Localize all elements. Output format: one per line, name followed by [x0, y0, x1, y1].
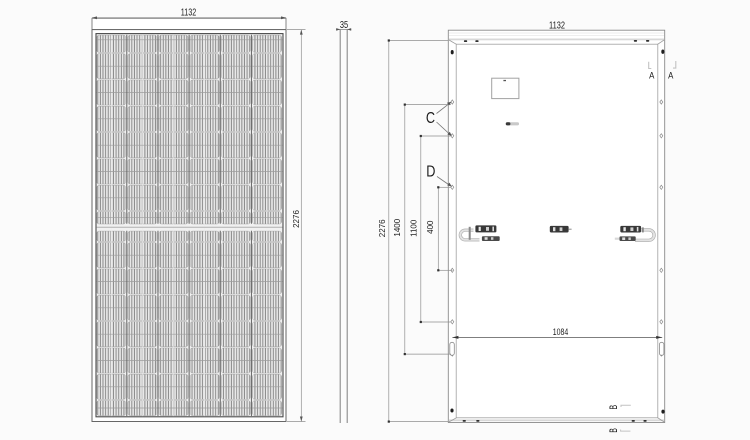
svg-text:C: C: [426, 110, 435, 127]
svg-text:A: A: [668, 70, 674, 81]
svg-text:B: B: [607, 405, 619, 410]
svg-text:A: A: [649, 70, 655, 81]
svg-text:2276: 2276: [292, 210, 301, 228]
svg-text:1132: 1132: [181, 6, 197, 18]
svg-text:1100: 1100: [410, 219, 419, 237]
svg-text:1132: 1132: [549, 20, 565, 31]
svg-text:1084: 1084: [553, 327, 569, 337]
svg-text:35: 35: [340, 19, 348, 30]
svg-text:D: D: [426, 163, 435, 180]
svg-text:1400: 1400: [393, 218, 402, 236]
svg-text:B: B: [607, 428, 619, 433]
svg-text:400: 400: [426, 220, 435, 234]
svg-text:2276: 2276: [378, 219, 387, 237]
